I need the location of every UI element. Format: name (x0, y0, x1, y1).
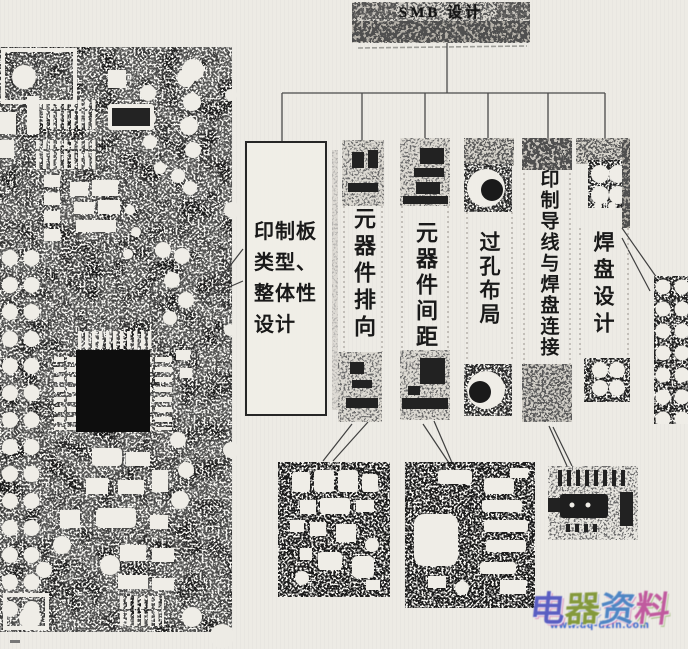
tree-connectors (282, 43, 605, 141)
right-pad-array-photo (654, 276, 688, 424)
branch-box-component-orientation: 元器件排向 (340, 207, 386, 357)
branch-label-pcb-type: 印制板类型、整体性设计 (254, 217, 318, 341)
branch-box-pad-design: 焊盘设计 (580, 231, 626, 361)
branch-box-component-spacing: 元器件间距 (402, 221, 448, 356)
branch-label-component-orientation: 元器件排向 (347, 207, 379, 342)
leader-col3-to-example (434, 421, 453, 465)
leader-col5-to-example (553, 427, 572, 466)
scanned-page: SMB 设计 印制板类型、整体性设计 元器件排向 元器件间距 过孔布局 印制导线… (0, 0, 688, 649)
watermark: 电器资料 www.dq-dzin.com (512, 592, 688, 646)
orientation-example-photo (278, 462, 390, 597)
branch-label-component-spacing: 元器件间距 (409, 221, 441, 351)
root-box-label: SMB 设计 (399, 1, 483, 22)
branch-box-trace-pad-connection: 印制导线与焊盘连接 (526, 169, 570, 369)
branch-label-via-layout: 过孔布局 (474, 231, 504, 327)
spacing-example-photo (405, 462, 535, 608)
watermark-text: 电器资料 (512, 592, 688, 627)
leader-col6-to-pads (622, 238, 650, 291)
connection-example-photo (548, 466, 638, 540)
leader-col3-to-example (423, 424, 449, 463)
branch-label-trace-pad-connection: 印制导线与焊盘连接 (535, 169, 562, 358)
branch-label-pad-design: 焊盘设计 (588, 231, 618, 339)
main-pcb-photo (0, 47, 240, 648)
leader-col5-to-example (549, 426, 567, 466)
scan-bleed-artifact (332, 150, 338, 410)
root-box: SMB 设计 (352, 2, 530, 21)
branch-box-via-layout: 过孔布局 (466, 231, 512, 341)
branch-box-pcb-type: 印制板类型、整体性设计 (245, 141, 327, 416)
